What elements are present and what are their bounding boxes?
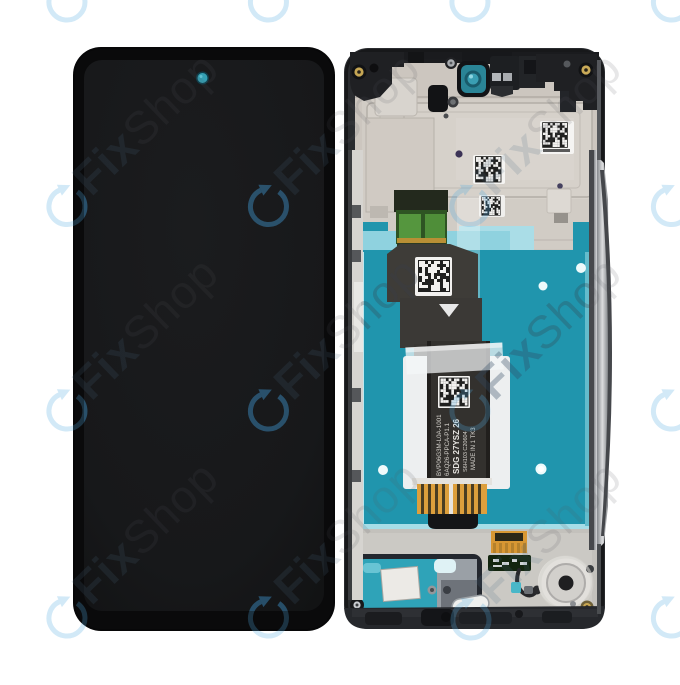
svg-text:S6H103 C20604: S6H103 C20604 xyxy=(463,431,469,472)
svg-text:MADE IN 1 TK3: MADE IN 1 TK3 xyxy=(471,427,477,470)
svg-text:BVP06G3M-L0A-1001: BVP06G3M-L0A-1001 xyxy=(436,414,443,476)
svg-text:6AQ26-PPCA-P1.1: 6AQ26-PPCA-P1.1 xyxy=(444,422,451,476)
